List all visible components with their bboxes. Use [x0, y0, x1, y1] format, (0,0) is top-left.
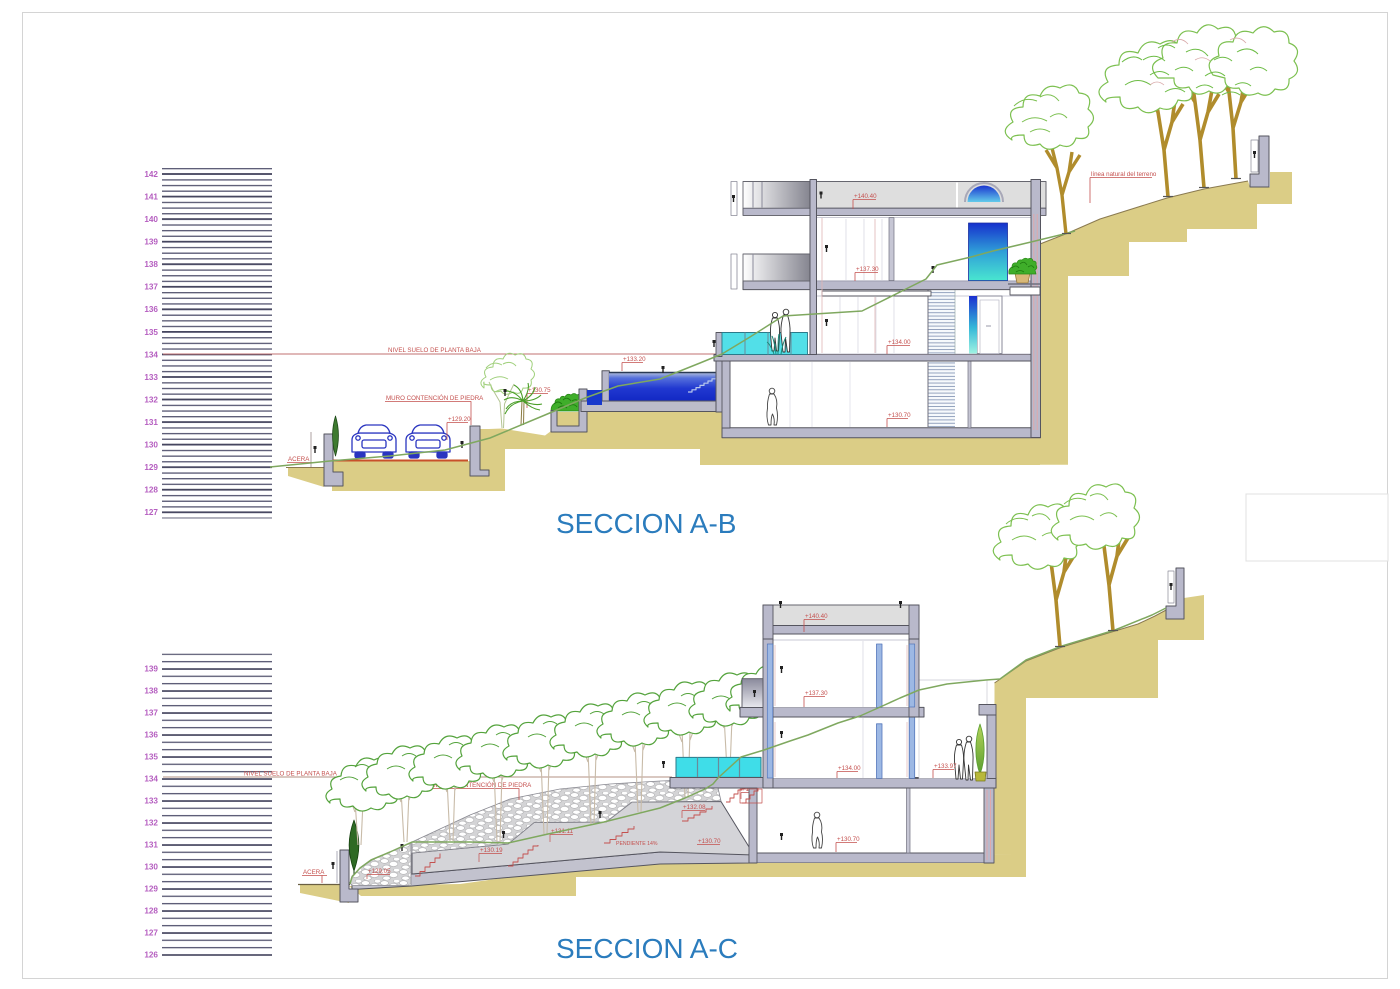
- svg-text:+130.75: +130.75: [528, 387, 551, 394]
- svg-text:+137.30: +137.30: [805, 690, 828, 697]
- svg-text:137: 137: [144, 709, 158, 718]
- svg-text:134: 134: [144, 350, 158, 359]
- svg-text:135: 135: [144, 328, 158, 337]
- svg-text:128: 128: [144, 907, 158, 916]
- svg-text:130: 130: [144, 441, 158, 450]
- svg-text:127: 127: [144, 929, 158, 938]
- svg-text:132: 132: [144, 819, 158, 828]
- svg-text:+132.08: +132.08: [683, 804, 706, 811]
- svg-text:+140.40: +140.40: [854, 193, 877, 200]
- svg-text:PENDIENTE 14%: PENDIENTE 14%: [616, 841, 658, 847]
- svg-text:MURO CONTENCIÓN DE PIEDRA: MURO CONTENCIÓN DE PIEDRA: [386, 395, 484, 402]
- svg-text:127: 127: [144, 508, 158, 517]
- svg-text:134: 134: [144, 775, 158, 784]
- svg-text:135: 135: [144, 753, 158, 762]
- svg-text:+130.70: +130.70: [698, 838, 721, 845]
- svg-text:131: 131: [144, 418, 158, 427]
- svg-text:136: 136: [144, 731, 158, 740]
- svg-text:+130.70: +130.70: [888, 412, 911, 419]
- svg-text:+140.40: +140.40: [805, 613, 828, 620]
- svg-text:NIVEL SUELO DE PLANTA BAJA: NIVEL SUELO DE PLANTA BAJA: [388, 347, 482, 354]
- svg-text:+129.20: +129.20: [448, 416, 471, 423]
- svg-text:+130.19: +130.19: [480, 847, 503, 854]
- svg-text:136: 136: [144, 305, 158, 314]
- svg-text:140: 140: [144, 215, 158, 224]
- svg-text:138: 138: [144, 687, 158, 696]
- svg-text:+134.00: +134.00: [888, 339, 911, 346]
- svg-text:+129.05: +129.05: [368, 868, 391, 875]
- svg-text:+134.00: +134.00: [838, 765, 861, 772]
- svg-text:139: 139: [144, 238, 158, 247]
- svg-text:NIVEL SUELO DE PLANTA BAJA: NIVEL SUELO DE PLANTA BAJA: [244, 771, 338, 778]
- svg-text:126: 126: [144, 951, 158, 960]
- svg-text:131: 131: [144, 841, 158, 850]
- svg-text:+133.97: +133.97: [934, 763, 957, 770]
- svg-text:133: 133: [144, 373, 158, 382]
- svg-text:132: 132: [144, 395, 158, 404]
- svg-text:139: 139: [144, 665, 158, 674]
- svg-text:137: 137: [144, 283, 158, 292]
- svg-text:133: 133: [144, 797, 158, 806]
- svg-text:129: 129: [144, 463, 158, 472]
- svg-text:+137.30: +137.30: [856, 266, 879, 273]
- svg-text:+130.70: +130.70: [837, 836, 860, 843]
- svg-text:ACERA: ACERA: [303, 869, 325, 876]
- svg-text:142: 142: [144, 170, 158, 179]
- svg-text:+133.20: +133.20: [623, 356, 646, 363]
- svg-text:128: 128: [144, 486, 158, 495]
- svg-text:130: 130: [144, 863, 158, 872]
- svg-text:141: 141: [144, 193, 158, 202]
- svg-text:ACERA: ACERA: [288, 456, 310, 463]
- svg-text:SECCION A-C: SECCION A-C: [556, 933, 738, 964]
- svg-text:129: 129: [144, 885, 158, 894]
- svg-text:138: 138: [144, 260, 158, 269]
- svg-text:SECCION A-B: SECCION A-B: [556, 508, 736, 539]
- svg-text:línea natural del terreno: línea natural del terreno: [1091, 171, 1157, 178]
